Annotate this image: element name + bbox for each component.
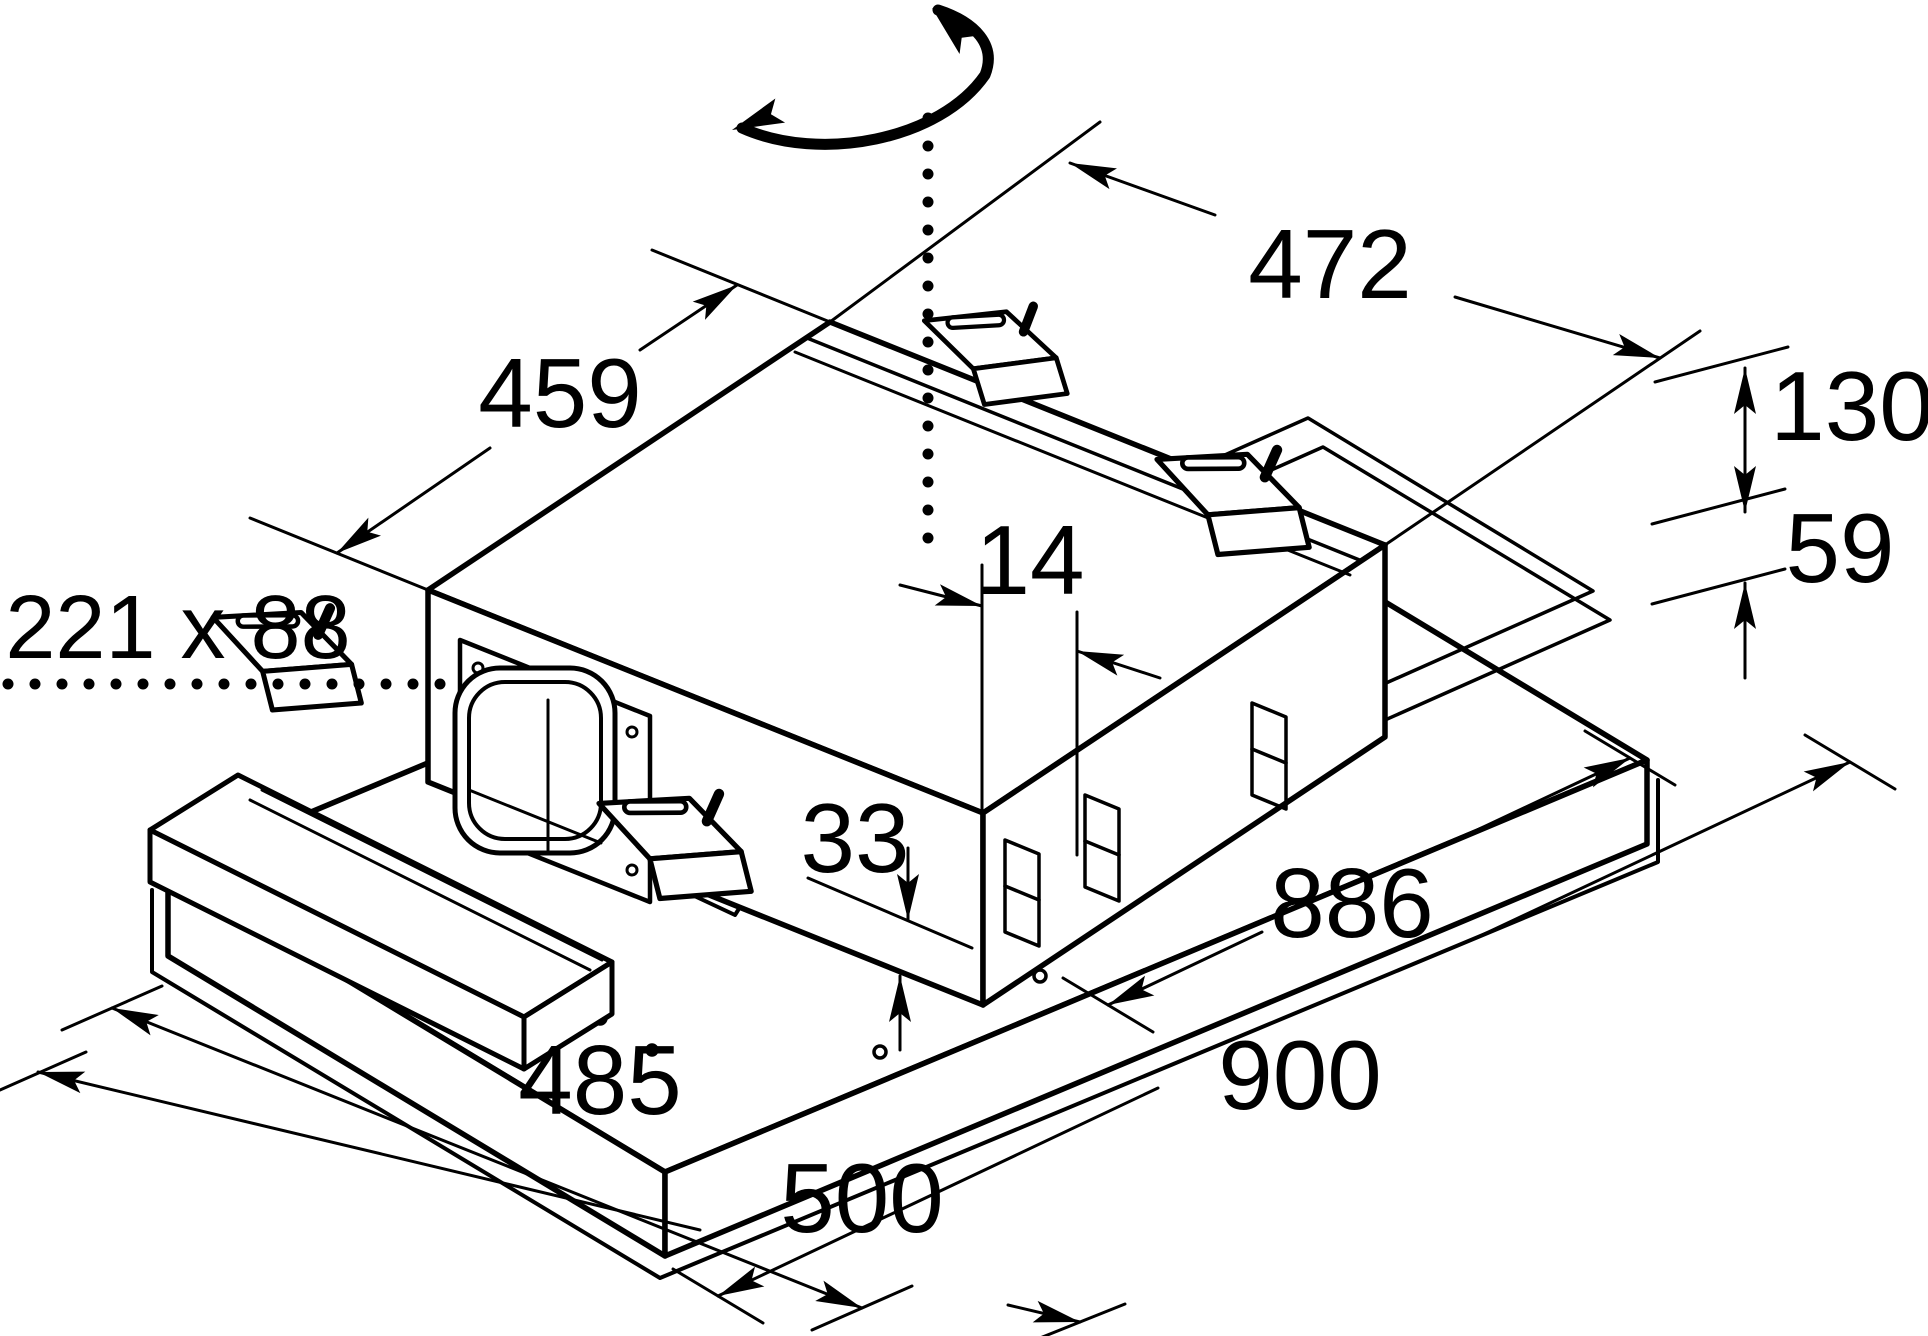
dim-label-duct-outlet: 221 x 88 — [5, 578, 350, 678]
dim-label-top-depth: 459 — [478, 338, 642, 448]
rotation-arrow-icon — [727, 0, 988, 144]
dim-label-cutout-width: 485 — [518, 1025, 682, 1135]
dim-label-panel-height: 59 — [1785, 493, 1894, 603]
dim-label-panel-length: 900 — [1218, 1020, 1382, 1130]
dim-label-edge-offset: 14 — [975, 505, 1084, 615]
hood-installation-diagram: 472 459 130 59 14 33 221 x 88 886 900 48… — [0, 0, 1928, 1336]
dim-label-panel-width: 500 — [780, 1143, 944, 1253]
dim-label-cutout-length: 886 — [1270, 848, 1434, 958]
dim-label-bottom-gap: 33 — [800, 783, 909, 893]
dim-label-top-width: 472 — [1248, 209, 1412, 319]
dim-label-housing-height: 130 — [1770, 351, 1928, 461]
technical-drawing-page: 472 459 130 59 14 33 221 x 88 886 900 48… — [0, 0, 1928, 1336]
center-line-duct — [3, 679, 446, 690]
